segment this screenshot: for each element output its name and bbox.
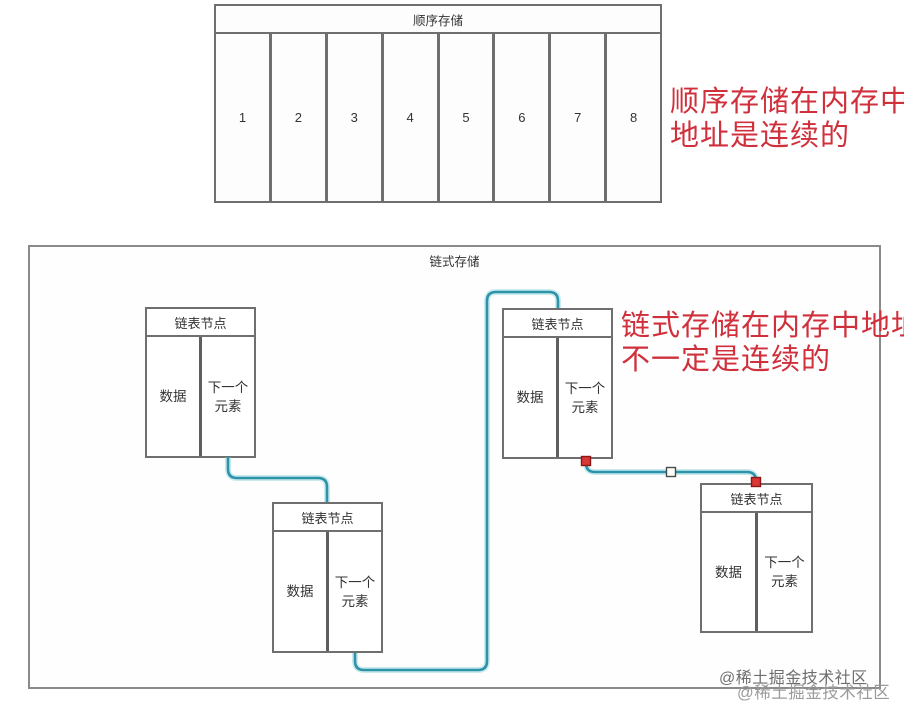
linked-node-1-title: 链表节点 bbox=[147, 309, 254, 337]
sequential-cell-7[interactable]: 7 bbox=[551, 34, 607, 201]
next-label-line-1: 下一个 bbox=[565, 379, 606, 398]
next-label-line-1: 下一个 bbox=[335, 573, 376, 592]
linked-node-3-body: 数据 下一个 元素 bbox=[504, 338, 611, 457]
linked-node-3-title: 链表节点 bbox=[504, 310, 611, 338]
sequential-annotation: 顺序存储在内存中 地址是连续的 bbox=[670, 85, 904, 153]
linked-annotation-line-1: 链式存储在内存中地址 bbox=[621, 309, 904, 343]
next-label-line-2: 元素 bbox=[342, 592, 369, 611]
next-label-line-2: 元素 bbox=[215, 397, 242, 416]
sequential-storage-cells: 1 2 3 4 5 6 7 8 bbox=[214, 34, 662, 203]
sequential-annotation-line-2: 地址是连续的 bbox=[670, 119, 904, 153]
linked-node-2[interactable]: 链表节点 数据 下一个 元素 bbox=[272, 502, 383, 653]
linked-node-1-data-cell[interactable]: 数据 bbox=[147, 337, 202, 456]
linked-node-2-title: 链表节点 bbox=[274, 504, 381, 532]
sequential-cell-4[interactable]: 4 bbox=[384, 34, 440, 201]
sequential-cell-8[interactable]: 8 bbox=[607, 34, 660, 201]
sequential-storage-title: 顺序存储 bbox=[214, 4, 662, 34]
linked-annotation: 链式存储在内存中地址 不一定是连续的 bbox=[621, 309, 904, 377]
sequential-storage-table[interactable]: 顺序存储 1 2 3 4 5 6 7 8 bbox=[214, 4, 662, 203]
sequential-cell-3[interactable]: 3 bbox=[328, 34, 384, 201]
linked-node-1[interactable]: 链表节点 数据 下一个 元素 bbox=[145, 307, 256, 458]
sequential-cell-1[interactable]: 1 bbox=[216, 34, 272, 201]
sequential-cell-5[interactable]: 5 bbox=[440, 34, 496, 201]
linked-node-4-body: 数据 下一个 元素 bbox=[702, 513, 811, 631]
linked-annotation-line-2: 不一定是连续的 bbox=[621, 343, 904, 377]
sequential-cell-2[interactable]: 2 bbox=[272, 34, 328, 201]
next-label-line-1: 下一个 bbox=[208, 378, 249, 397]
watermark-community-shadow: @稀土掘金技术社区 bbox=[737, 679, 890, 703]
linked-node-1-body: 数据 下一个 元素 bbox=[147, 337, 254, 456]
linked-node-3-next-cell[interactable]: 下一个 元素 bbox=[559, 338, 611, 457]
linked-node-4-title: 链表节点 bbox=[702, 485, 811, 513]
linked-node-2-next-cell[interactable]: 下一个 元素 bbox=[329, 532, 381, 651]
linked-node-3-data-cell[interactable]: 数据 bbox=[504, 338, 559, 457]
linked-node-2-body: 数据 下一个 元素 bbox=[274, 532, 381, 651]
linked-storage-title: 链式存储 bbox=[30, 251, 879, 270]
linked-node-2-data-cell[interactable]: 数据 bbox=[274, 532, 329, 651]
linked-node-3[interactable]: 链表节点 数据 下一个 元素 bbox=[502, 308, 613, 459]
linked-node-4-next-cell[interactable]: 下一个 元素 bbox=[758, 513, 811, 631]
linked-node-1-next-cell[interactable]: 下一个 元素 bbox=[202, 337, 254, 456]
next-label-line-2: 元素 bbox=[572, 398, 599, 417]
sequential-annotation-line-1: 顺序存储在内存中 bbox=[670, 85, 904, 119]
next-label-line-2: 元素 bbox=[771, 572, 798, 591]
linked-node-4[interactable]: 链表节点 数据 下一个 元素 bbox=[700, 483, 813, 633]
sequential-cell-6[interactable]: 6 bbox=[495, 34, 551, 201]
next-label-line-1: 下一个 bbox=[764, 553, 805, 572]
linked-node-4-data-cell[interactable]: 数据 bbox=[702, 513, 758, 631]
